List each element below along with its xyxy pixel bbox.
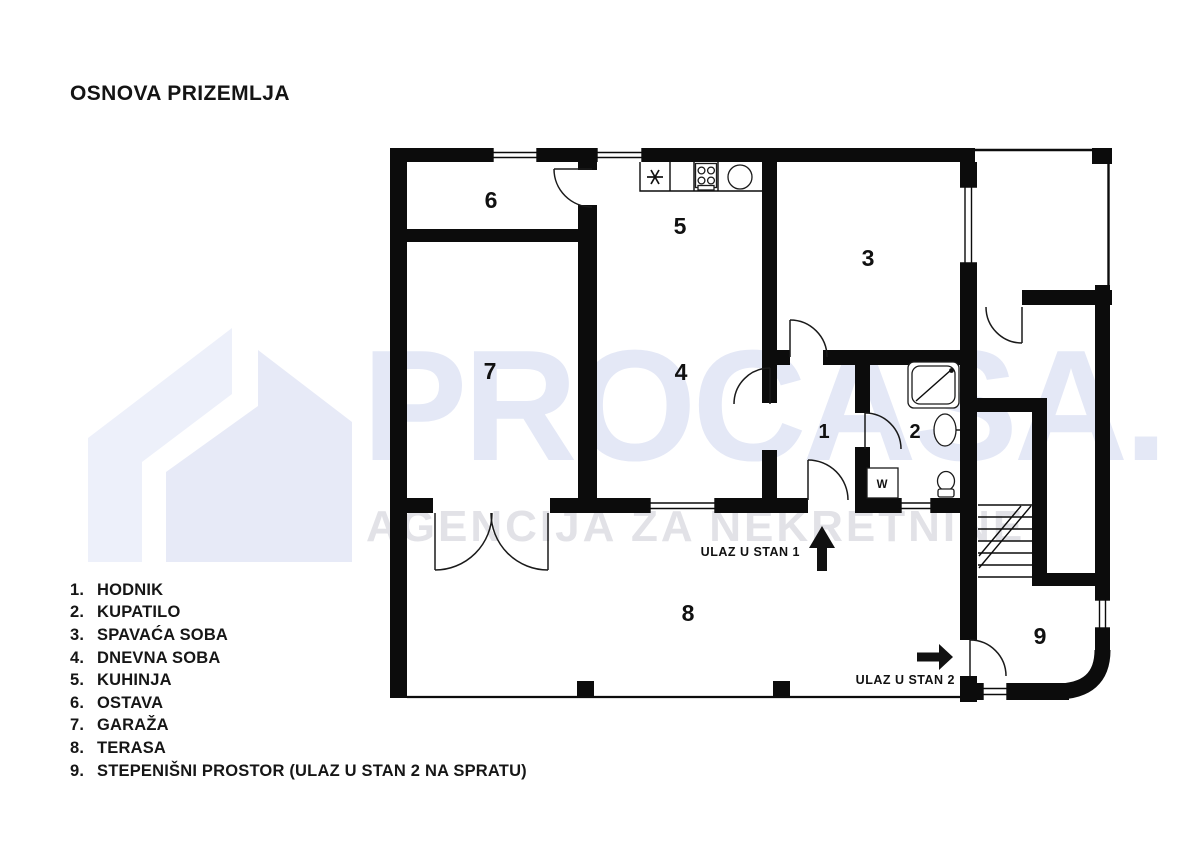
stove-icon (696, 164, 717, 191)
wall-right-outer (1095, 285, 1110, 600)
room-label-stepenisni-prostor: 9 (1034, 623, 1047, 649)
room-label-kupatilo: 2 (909, 421, 920, 443)
door-stairwell-entry (970, 640, 1006, 676)
wall-bottom-right (962, 683, 983, 700)
room-label-kuhinja: 5 (674, 213, 687, 239)
door-storage-kitchen (554, 169, 592, 207)
legend-item: 1.HODNIK (70, 579, 527, 602)
legend-item-number: 4. (70, 649, 97, 668)
watermark-layer: PROCASA. R AGENCIJA ZA NEKRETNINE (88, 318, 1164, 562)
room-label-spavaca-soba: 3 (862, 245, 875, 271)
legend-item: 4.DNEVNA SOBA (70, 647, 527, 670)
terrace-pillar (773, 681, 790, 698)
wall-bedroom-right (960, 263, 977, 640)
wall-bottom (715, 498, 808, 513)
room-label-dnevna-soba: 4 (675, 359, 688, 385)
wall-bottom-right (1007, 683, 1069, 700)
window-stairwell-right (1095, 600, 1110, 628)
room-label-hodnik: 1 (818, 421, 829, 443)
wall-below-stairs (1032, 573, 1100, 586)
wall-bottom (390, 498, 433, 513)
wall-stair-right (1032, 412, 1047, 585)
entrance2-label: ULAZ U STAN 2 (856, 673, 955, 687)
legend-item-number: 7. (70, 716, 97, 735)
legend-item: 3.SPAVAĆA SOBA (70, 624, 527, 647)
wall-living-right (762, 162, 777, 403)
arrow-right-icon (917, 644, 953, 670)
window-top-1 (493, 148, 537, 162)
wall-bottom (855, 498, 901, 513)
wall-hall-bath (855, 365, 870, 413)
legend-item-label: KUPATILO (97, 603, 180, 622)
legend-item-label: OSTAVA (97, 694, 163, 713)
room-legend: 1.HODNIK 2.KUPATILO 3.SPAVAĆA SOBA 4.DNE… (70, 579, 527, 782)
legend-item: 6.OSTAVA (70, 692, 527, 715)
legend-item-number: 2. (70, 603, 97, 622)
boiler-asterisk-icon (647, 170, 663, 184)
wall-bedroom-right (960, 162, 977, 187)
entrance1-label: ULAZ U STAN 1 (701, 545, 800, 559)
room-label-garaza: 7 (484, 358, 497, 384)
window-stairwell-bottom (983, 683, 1007, 700)
legend-item-number: 5. (70, 671, 97, 690)
legend-item-number: 3. (70, 626, 97, 645)
legend-item-label: STEPENIŠNI PROSTOR (ULAZ U STAN 2 NA SPR… (97, 762, 527, 781)
legend-item-label: TERASA (97, 739, 166, 758)
floorplan-page: OSNOVA PRIZEMLJA 1.HODNIK 2.KUPATILO 3.S… (0, 0, 1200, 848)
wall-bedroom-bottom (777, 350, 790, 365)
wall-stair-jog (975, 398, 1047, 412)
legend-item: 5.KUHINJA (70, 669, 527, 692)
shower-icon (908, 362, 959, 408)
wall-top (390, 148, 493, 162)
legend-item-label: HODNIK (97, 581, 163, 600)
toilet-icon (938, 472, 955, 498)
legend-item-label: SPAVAĆA SOBA (97, 626, 228, 645)
room-label-ostava: 6 (485, 187, 498, 213)
legend-item-number: 6. (70, 694, 97, 713)
legend-item-label: DNEVNA SOBA (97, 649, 221, 668)
legend-item-number: 1. (70, 581, 97, 600)
legend-item-label: KUHINJA (97, 671, 172, 690)
wall-garage-living (578, 205, 597, 504)
legend-item-number: 8. (70, 739, 97, 758)
room-label-terasa: 8 (682, 600, 695, 626)
wall-bottom (550, 498, 650, 513)
wall-bottom (931, 498, 962, 513)
window-bedroom-right (960, 187, 977, 263)
page-title: OSNOVA PRIZEMLJA (70, 82, 290, 106)
legend-item: 8.TERASA (70, 737, 527, 760)
washer-label: W (877, 479, 888, 491)
legend-item-label: GARAŽA (97, 716, 169, 735)
wall-top (537, 148, 597, 162)
wall-top (642, 148, 975, 162)
kitchen-sink-icon (728, 165, 752, 189)
terrace-pillar (577, 681, 594, 698)
legend-item: 9.STEPENIŠNI PROSTOR (ULAZ U STAN 2 NA S… (70, 760, 527, 783)
wall-corner-block (1092, 148, 1112, 164)
kitchen-counter (640, 162, 762, 191)
legend-item: 2.KUPATILO (70, 602, 527, 625)
window-top-2 (597, 148, 642, 162)
wall-storage-garage (407, 229, 578, 242)
legend-item: 7.GARAŽA (70, 715, 527, 738)
watermark-tagline: AGENCIJA ZA NEKRETNINE (366, 502, 1025, 551)
washing-machine-icon: W (867, 468, 898, 498)
legend-item-number: 9. (70, 762, 97, 781)
house-logo-icon (88, 328, 352, 562)
